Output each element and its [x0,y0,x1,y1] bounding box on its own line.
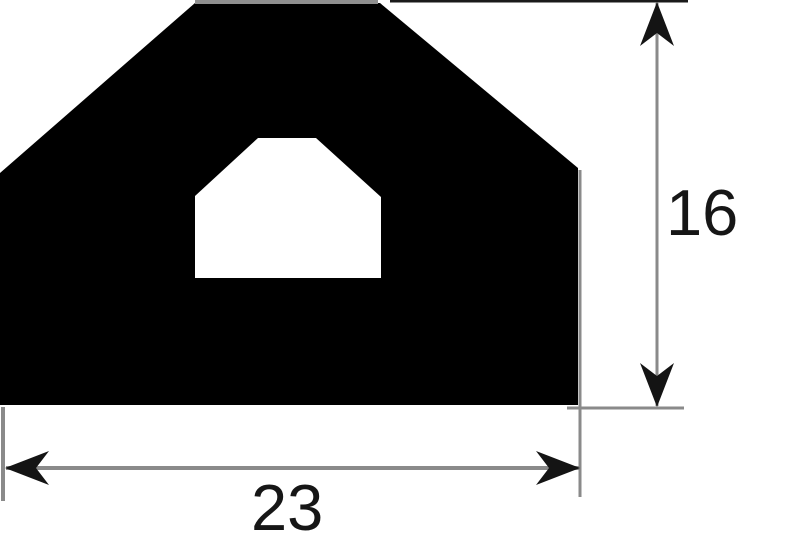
height-dimension-label: 16 [666,176,738,249]
technical-drawing: 16 23 [0,0,800,558]
drawing-page: 16 23 [0,0,800,558]
width-dimension-label: 23 [251,471,323,544]
